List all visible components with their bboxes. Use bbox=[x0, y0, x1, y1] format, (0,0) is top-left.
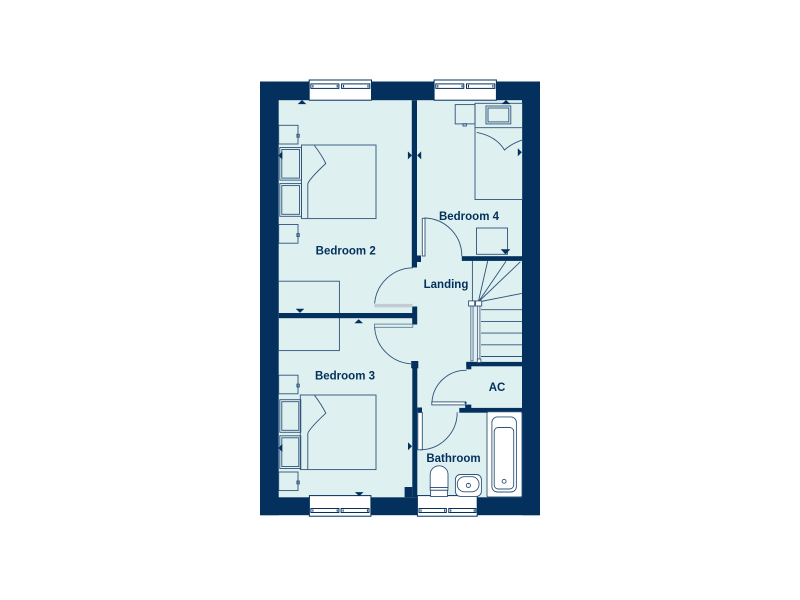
svg-text:Bedroom 2: Bedroom 2 bbox=[316, 246, 376, 258]
svg-text:AC: AC bbox=[489, 382, 506, 394]
svg-text:Landing: Landing bbox=[424, 279, 469, 291]
svg-text:Bedroom 3: Bedroom 3 bbox=[315, 371, 375, 383]
svg-text:Bathroom: Bathroom bbox=[426, 453, 480, 465]
svg-text:Bedroom 4: Bedroom 4 bbox=[439, 211, 500, 223]
